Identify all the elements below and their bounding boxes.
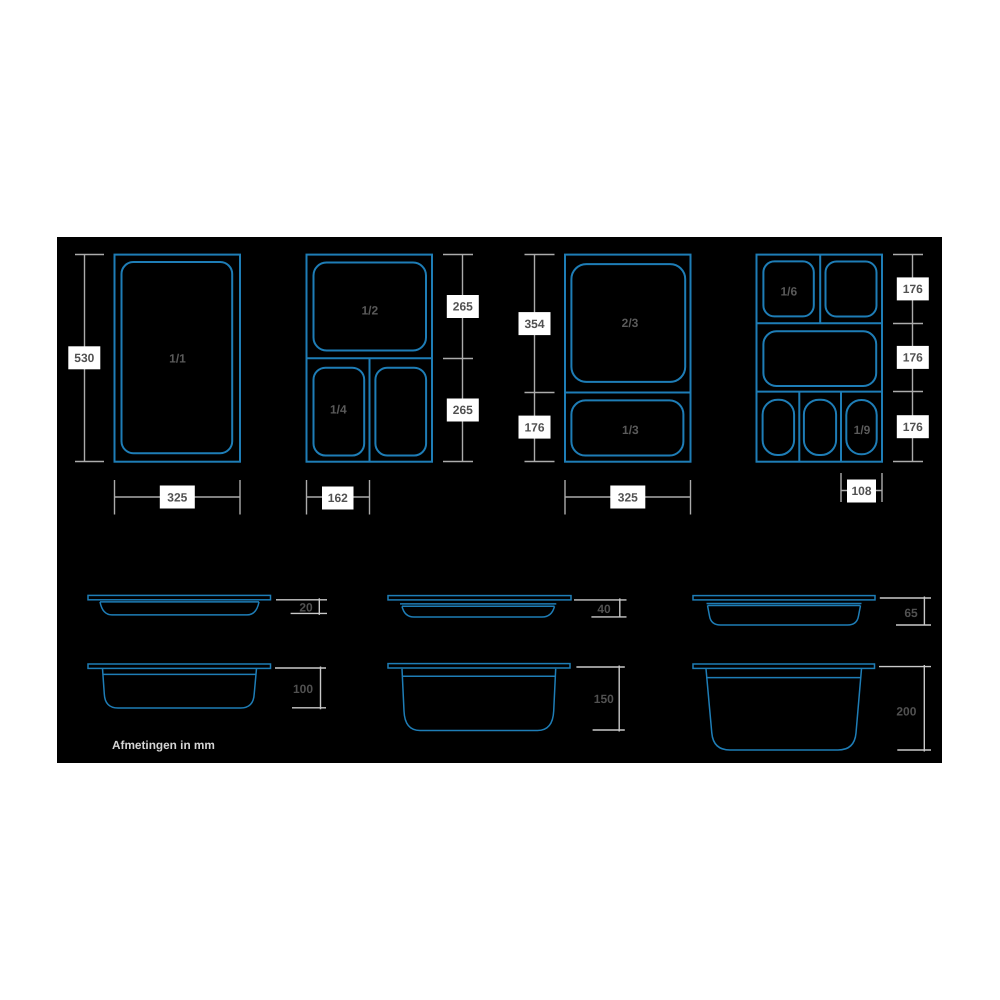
- svg-text:1/9: 1/9: [854, 423, 871, 437]
- svg-text:Afmetingen in mm: Afmetingen in mm: [112, 738, 215, 752]
- svg-text:1/2: 1/2: [361, 303, 378, 317]
- svg-text:2/3: 2/3: [622, 316, 639, 330]
- svg-text:1/6: 1/6: [780, 285, 797, 299]
- svg-text:354: 354: [524, 317, 544, 331]
- svg-text:40: 40: [597, 602, 611, 616]
- svg-text:1/1: 1/1: [169, 352, 186, 366]
- svg-text:100: 100: [293, 682, 313, 696]
- svg-text:108: 108: [851, 484, 871, 498]
- svg-text:176: 176: [903, 282, 923, 296]
- svg-text:162: 162: [328, 491, 348, 505]
- svg-text:65: 65: [904, 606, 918, 620]
- svg-text:325: 325: [167, 491, 187, 505]
- svg-text:176: 176: [903, 351, 923, 365]
- svg-text:176: 176: [903, 420, 923, 434]
- svg-text:1/3: 1/3: [622, 423, 639, 437]
- svg-text:176: 176: [524, 420, 544, 434]
- svg-text:325: 325: [618, 491, 638, 505]
- svg-text:1/4: 1/4: [330, 402, 347, 416]
- svg-text:530: 530: [74, 351, 94, 365]
- svg-text:200: 200: [896, 704, 916, 718]
- svg-text:20: 20: [299, 600, 313, 614]
- svg-text:150: 150: [594, 692, 614, 706]
- svg-text:265: 265: [453, 300, 473, 314]
- svg-text:265: 265: [453, 403, 473, 417]
